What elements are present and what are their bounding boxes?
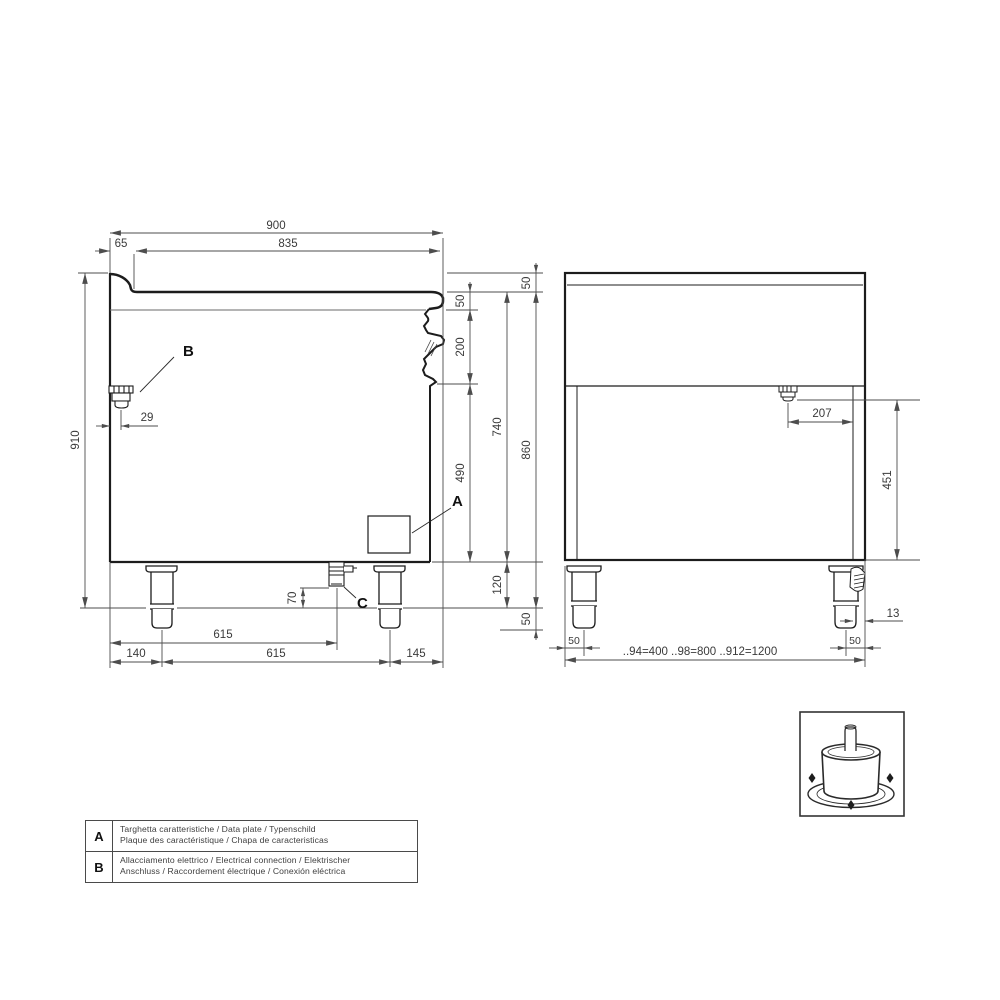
- dim-splash-height: 50: [521, 277, 533, 290]
- dim-front-height: 490: [455, 463, 467, 482]
- rear-connector: [779, 386, 797, 401]
- legend-b-line2: Anschluss / Raccordement électrique / Co…: [120, 866, 413, 877]
- dim-overall-depth: 900: [266, 220, 285, 232]
- dim-left-leg-inset: 50: [568, 635, 580, 647]
- dim-model-widths: ..94=400 ..98=800 ..912=1200: [623, 646, 777, 658]
- electrical-connector: [109, 386, 133, 408]
- dim-worktop-depth: 835: [278, 238, 297, 250]
- dim-foot-edge-offset: 13: [887, 608, 900, 620]
- dim-drain-from-rear: 615: [213, 629, 232, 641]
- dim-rear-edge: 65: [115, 238, 128, 250]
- dim-right-leg-inset: 50: [849, 635, 861, 647]
- label-b: B: [183, 343, 194, 360]
- legend-b-line1: Allacciamento elettrico / Electrical con…: [120, 855, 413, 866]
- dim-worktop-height: 860: [521, 440, 533, 459]
- label-a: A: [452, 493, 463, 510]
- dim-overall-height: 910: [70, 430, 82, 449]
- legend-text-a: Targhetta caratteristiche / Data plate /…: [113, 821, 417, 851]
- dim-panel-height: 200: [455, 337, 467, 356]
- rear-view: [565, 273, 865, 628]
- label-c: C: [357, 595, 368, 612]
- legend-text-b: Allacciamento elettrico / Electrical con…: [113, 852, 417, 882]
- dim-drain-drop: 70: [287, 592, 299, 605]
- side-view-dim-labels: 900 65 835 910 29 50 200 490 740 120 50 …: [70, 220, 533, 660]
- adjustable-foot-icon: [800, 712, 904, 816]
- dim-body-height: 740: [492, 417, 504, 436]
- dim-leg-spacing: 615: [266, 648, 285, 660]
- legend-key-a: A: [86, 821, 113, 851]
- legend-a-line1: Targhetta caratteristiche / Data plate /…: [120, 824, 413, 835]
- side-view: [109, 273, 444, 628]
- dim-top-edge-height: 50: [455, 295, 467, 308]
- dim-rear-connector-offset: 29: [141, 412, 154, 424]
- legend-a-line2: Plaque des caractéristique / Chapa de ca…: [120, 835, 413, 846]
- side-view-dimensions: [78, 233, 543, 668]
- legend-row-b: B Allacciamento elettrico / Electrical c…: [86, 852, 417, 882]
- data-plate: [368, 516, 410, 553]
- dim-foot-adjustment: 50: [521, 613, 533, 626]
- dim-front-leg-offset: 145: [406, 648, 425, 660]
- legend-table: A Targhetta caratteristiche / Data plate…: [85, 820, 418, 883]
- dim-connector-from-edge: 207: [812, 408, 831, 420]
- dim-connector-height: 451: [882, 470, 894, 489]
- legend-row-a: A Targhetta caratteristiche / Data plate…: [86, 821, 417, 852]
- dim-plinth-height: 120: [492, 575, 504, 594]
- legend-key-b: B: [86, 852, 113, 882]
- dim-rear-leg-offset: 140: [126, 648, 145, 660]
